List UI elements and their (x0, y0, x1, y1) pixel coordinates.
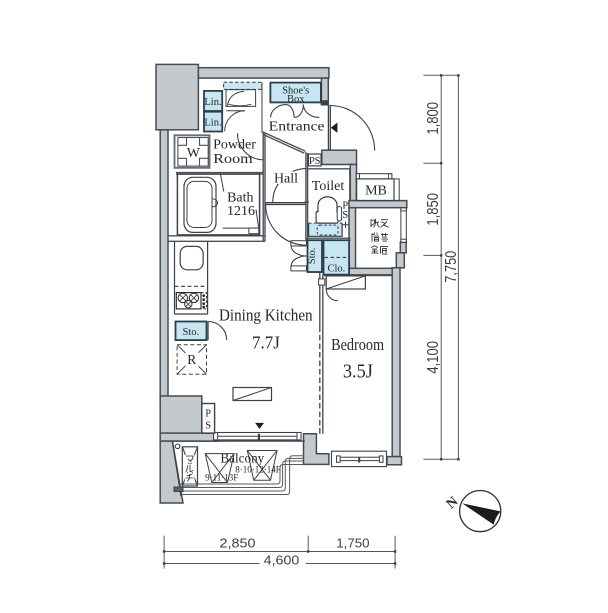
svg-text:Box: Box (287, 94, 305, 105)
svg-text:1,800: 1,800 (425, 102, 442, 135)
svg-text:Sto.: Sto. (307, 248, 318, 265)
svg-text:1,750: 1,750 (336, 535, 369, 550)
svg-text:7,750: 7,750 (443, 251, 460, 283)
svg-text:Clo.: Clo. (328, 263, 346, 274)
svg-text:1216: 1216 (227, 204, 255, 219)
svg-text:P: P (205, 409, 211, 420)
svg-text:Lin.: Lin. (204, 118, 221, 129)
svg-text:N: N (444, 494, 462, 512)
svg-text:7.7J: 7.7J (252, 333, 280, 353)
svg-text:Dining Kitchen: Dining Kitchen (219, 306, 313, 325)
svg-text:Toilet: Toilet (312, 179, 345, 194)
svg-text:Sto.: Sto. (182, 327, 199, 338)
svg-text:R: R (187, 352, 196, 367)
svg-text:Hall: Hall (274, 172, 298, 187)
svg-text:2,850: 2,850 (220, 535, 256, 550)
svg-text:Powder: Powder (213, 138, 256, 153)
svg-text:8·10·12·14F: 8·10·12·14F (235, 465, 281, 475)
svg-text:9·11·13F: 9·11·13F (205, 472, 238, 482)
svg-text:4,600: 4,600 (264, 553, 300, 568)
svg-text:S: S (205, 421, 211, 432)
svg-text:MB: MB (365, 183, 387, 198)
svg-text:Bedroom: Bedroom (331, 335, 384, 354)
svg-text:1,850: 1,850 (425, 193, 442, 226)
svg-text:W: W (187, 146, 201, 161)
svg-text:Entrance: Entrance (269, 119, 325, 134)
svg-text:S: S (342, 210, 348, 221)
svg-text:4,100: 4,100 (425, 341, 442, 374)
svg-text:3.5J: 3.5J (343, 362, 373, 383)
svg-text:Room: Room (213, 152, 253, 167)
svg-text:Lin.: Lin. (204, 97, 221, 108)
